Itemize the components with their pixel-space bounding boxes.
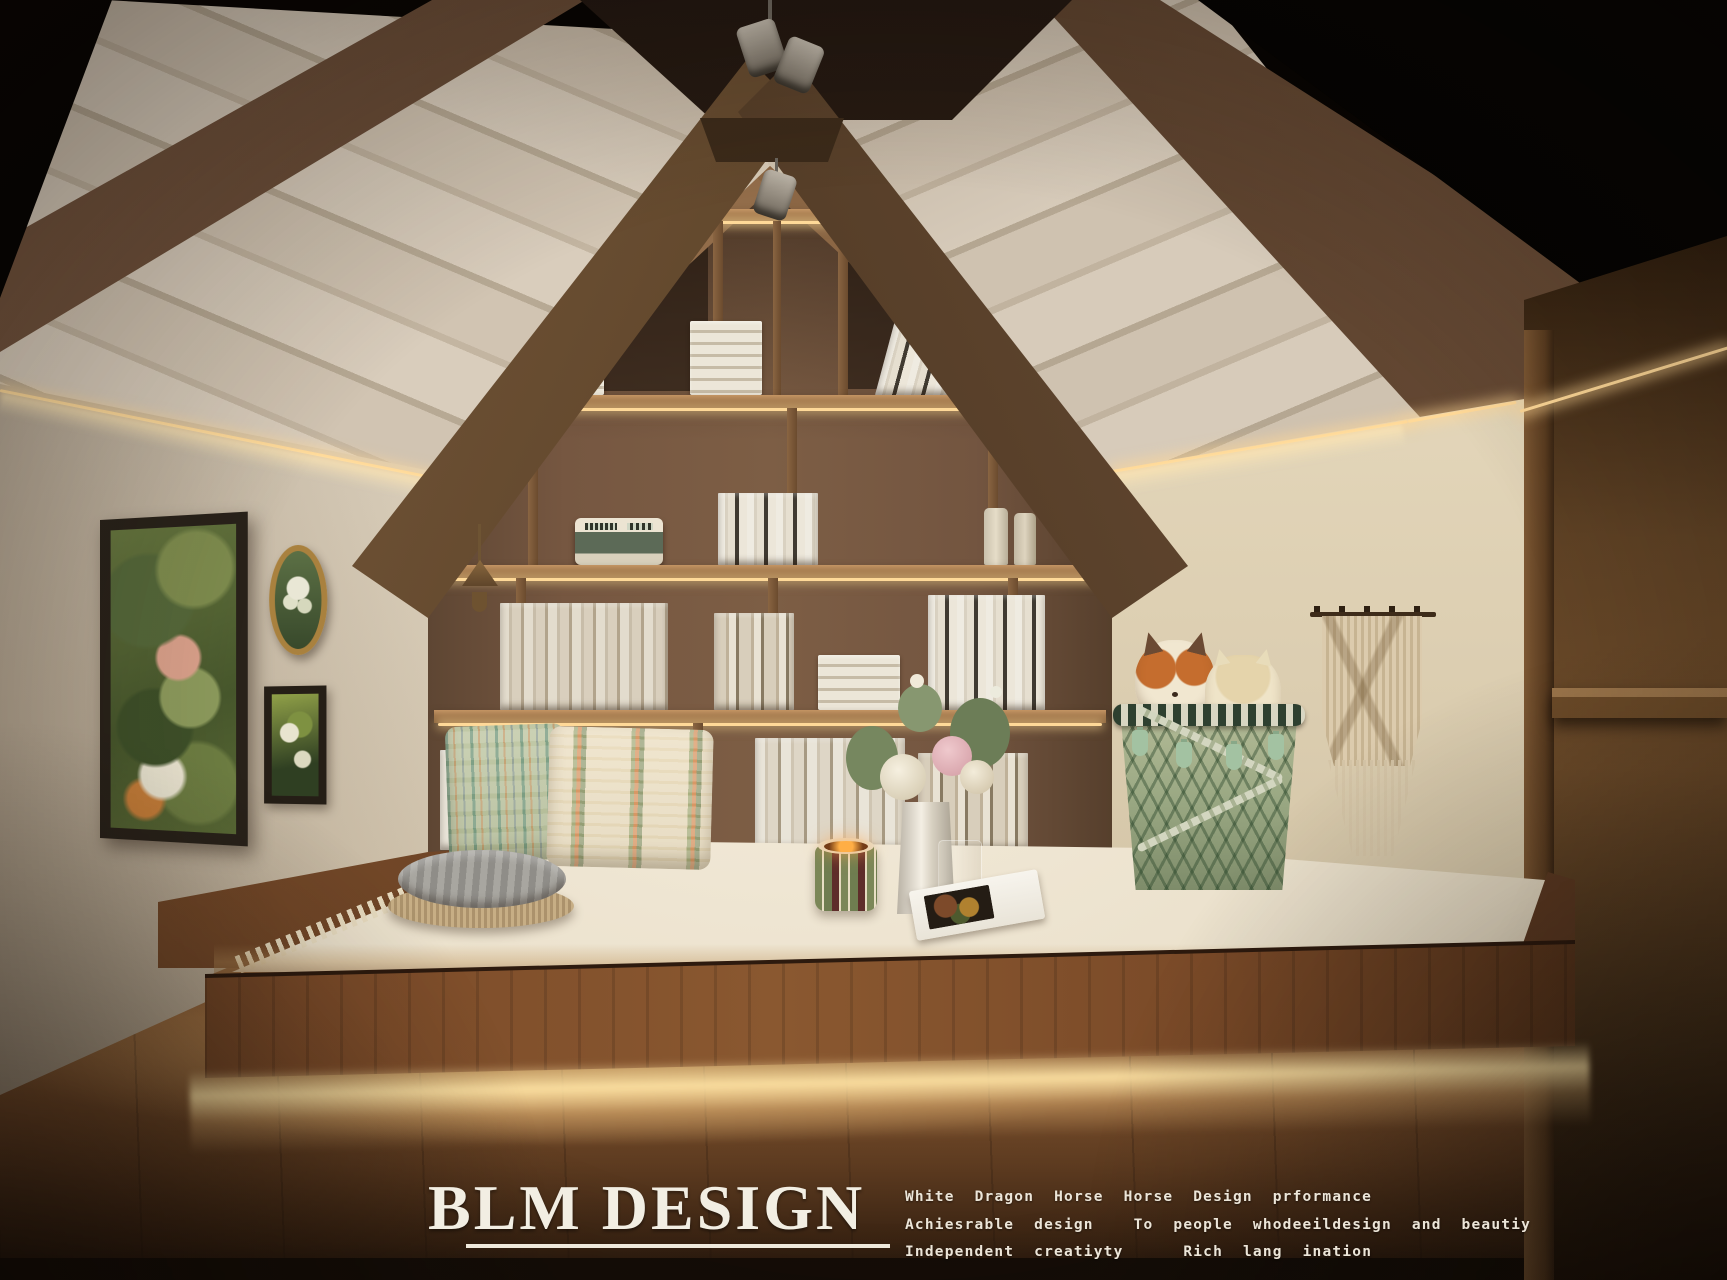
cabinet-front-stile — [1524, 330, 1554, 1280]
white-rose — [960, 760, 994, 794]
books — [500, 603, 668, 710]
divider — [773, 221, 781, 395]
basket-tassel — [1226, 744, 1242, 770]
candle-jar — [1014, 513, 1036, 565]
book-stack — [690, 321, 762, 395]
macrame-wall-hanging — [1322, 616, 1422, 766]
fox-nose — [1172, 692, 1178, 697]
art-frame-small-floral — [264, 685, 326, 804]
cabinet-shelf — [1552, 688, 1727, 718]
tagline-line: Achiesrable design To people whodeeildes… — [905, 1217, 1531, 1233]
led-strip-shelf — [523, 408, 1021, 411]
floor-cushion-top — [398, 850, 566, 908]
candle-holder — [815, 845, 877, 911]
brand-underline — [466, 1244, 890, 1248]
radio-knobs — [627, 523, 653, 530]
greenery — [898, 684, 942, 732]
shelf-board — [434, 565, 1106, 578]
candle-jar — [984, 508, 1008, 565]
tagline-line: Independent creatiyty Rich lang ination — [905, 1244, 1372, 1260]
scene-attic-reading-nook: BLM DESIGN White Dragon Horse Horse Desi… — [0, 0, 1727, 1280]
basket-tassel — [1176, 742, 1192, 768]
art-frame-large-garden-painting — [100, 512, 248, 847]
art-frame-oval-floral — [269, 544, 327, 655]
pillow-cream-botanical — [546, 726, 714, 870]
books — [714, 613, 794, 710]
brand-tagline: White Dragon Horse Horse Design prforman… — [905, 1184, 1531, 1267]
sconce-bell — [472, 592, 487, 612]
magazine-cover-photo — [924, 885, 995, 930]
brand-title: BLM DESIGN — [428, 1176, 865, 1240]
basket-tassel — [1132, 730, 1148, 756]
radio-display — [585, 523, 617, 530]
white-bud — [910, 674, 924, 688]
tagline-line: White Dragon Horse Horse Design prforman… — [905, 1189, 1372, 1205]
white-rose — [880, 754, 926, 800]
sconce-arm — [478, 524, 481, 564]
white-bud — [990, 686, 1002, 698]
basket-tassel — [1268, 734, 1284, 760]
books — [718, 493, 818, 565]
vintage-radio — [575, 518, 663, 565]
candle-flame — [824, 841, 868, 852]
